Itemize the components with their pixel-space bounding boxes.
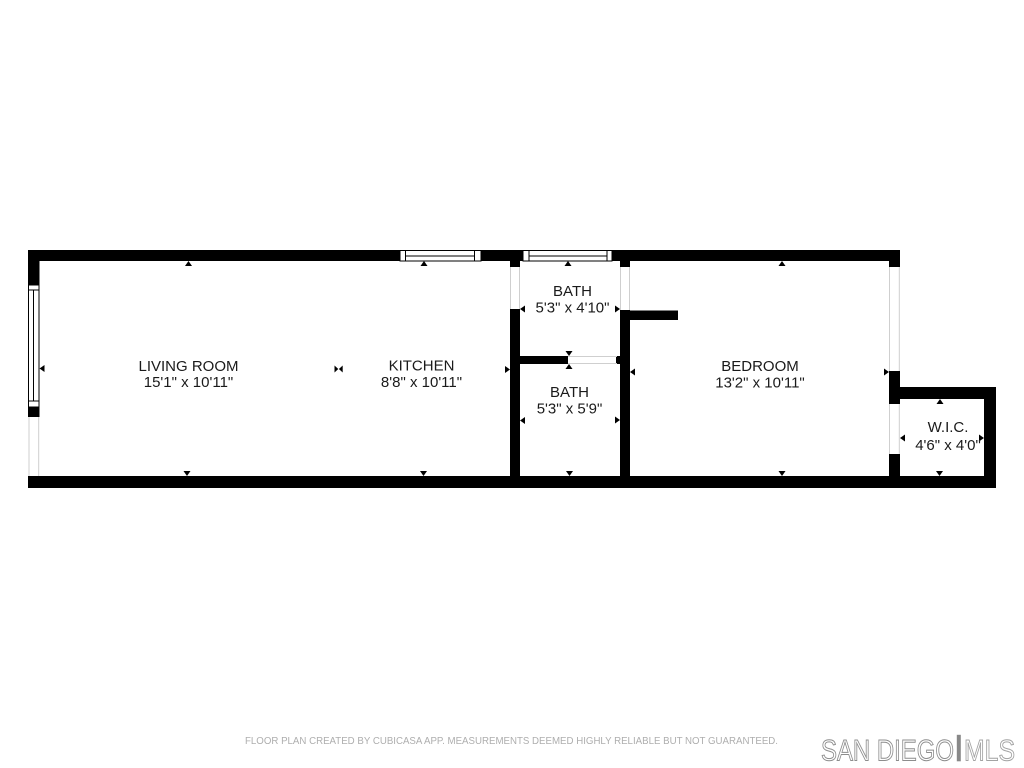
svg-text:BATH: BATH bbox=[553, 283, 592, 300]
svg-text:LIVING ROOM: LIVING ROOM bbox=[138, 358, 238, 375]
svg-text:4'6" x 4'0": 4'6" x 4'0" bbox=[915, 437, 981, 454]
svg-text:15'1" x 10'11": 15'1" x 10'11" bbox=[144, 374, 234, 391]
svg-text:13'2" x 10'11": 13'2" x 10'11" bbox=[715, 374, 805, 391]
svg-text:SAN DIEGO: SAN DIEGO bbox=[821, 735, 954, 768]
svg-text:5'3" x 5'9": 5'3" x 5'9" bbox=[537, 401, 603, 418]
svg-text:FLOOR PLAN CREATED BY CUBICASA: FLOOR PLAN CREATED BY CUBICASA APP. MEAS… bbox=[245, 736, 778, 747]
svg-text:KITCHEN: KITCHEN bbox=[389, 358, 455, 375]
svg-text:MLS: MLS bbox=[964, 735, 1015, 768]
svg-text:BEDROOM: BEDROOM bbox=[721, 358, 799, 375]
svg-text:5'3" x 4'10": 5'3" x 4'10" bbox=[536, 300, 610, 317]
svg-text:W.I.C.: W.I.C. bbox=[928, 419, 969, 436]
svg-text:8'8" x 10'11": 8'8" x 10'11" bbox=[381, 374, 462, 391]
svg-text:BATH: BATH bbox=[550, 384, 589, 401]
